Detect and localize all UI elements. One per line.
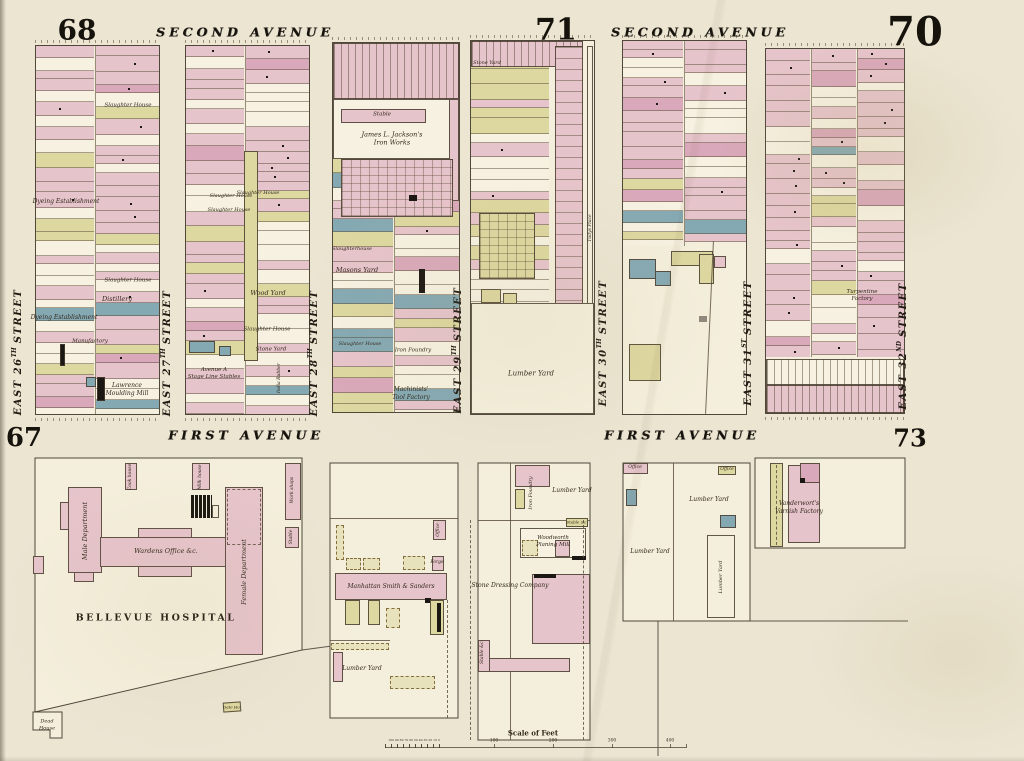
plate-number-71: 71 xyxy=(535,13,577,48)
lot xyxy=(623,86,683,98)
shed xyxy=(363,558,380,570)
lot xyxy=(36,192,94,208)
lot-column xyxy=(811,49,856,357)
lot-column xyxy=(186,46,244,414)
lot xyxy=(36,140,94,153)
lot xyxy=(766,179,810,194)
lot xyxy=(186,379,244,394)
plate-number-68: 68 xyxy=(58,14,97,47)
female-department-dashed xyxy=(227,489,261,545)
map-sheet: 68 71 70 67 73 SECOND AVENUE SECOND AVEN… xyxy=(0,0,1024,761)
lot xyxy=(96,72,159,85)
cook-house xyxy=(125,463,137,490)
lot xyxy=(766,346,810,357)
lot xyxy=(186,255,244,263)
lot xyxy=(766,142,810,155)
rowhouses-strip xyxy=(555,46,583,346)
chimney-dot xyxy=(891,109,893,111)
lot xyxy=(858,253,904,261)
lot xyxy=(186,284,244,299)
work-shops-building xyxy=(285,463,301,520)
lot xyxy=(36,300,94,308)
lot xyxy=(685,109,746,118)
lot xyxy=(246,377,309,386)
lot xyxy=(623,240,683,246)
lot xyxy=(623,202,683,211)
gray-building xyxy=(699,316,707,322)
lot xyxy=(685,178,746,188)
lot xyxy=(812,98,856,107)
first-avenue-label: FIRST AVENUE xyxy=(604,428,760,443)
parcel-line xyxy=(330,518,458,519)
chimney-dot xyxy=(794,211,796,213)
lot xyxy=(96,85,159,93)
second-avenue-label: SECOND AVENUE xyxy=(611,25,789,40)
lot xyxy=(96,303,159,316)
lot xyxy=(186,100,244,109)
lot xyxy=(685,73,746,86)
lot xyxy=(96,211,159,223)
lot-numbers-strip xyxy=(765,43,905,46)
lot xyxy=(623,232,683,240)
plate-number-67: 67 xyxy=(6,423,42,453)
lot xyxy=(685,234,746,242)
lot xyxy=(395,249,459,257)
shed xyxy=(346,558,361,570)
lot xyxy=(623,179,683,190)
lot xyxy=(623,58,683,68)
lot xyxy=(186,403,244,414)
chimney-dot xyxy=(140,126,142,128)
chimney-dot xyxy=(134,216,136,218)
lot xyxy=(812,138,856,147)
lot xyxy=(186,369,244,379)
lot xyxy=(395,295,459,309)
building-pink xyxy=(333,652,343,682)
lot xyxy=(766,155,810,164)
lot xyxy=(246,70,309,84)
lot-column xyxy=(95,46,159,414)
lot xyxy=(36,91,94,102)
lot xyxy=(812,87,856,98)
chimney-dot xyxy=(128,88,130,90)
lot xyxy=(395,375,459,389)
chimney-dot xyxy=(129,296,131,298)
lot xyxy=(858,129,904,137)
lot xyxy=(186,80,244,89)
lot xyxy=(766,249,810,264)
scale-minor-ticks xyxy=(385,744,443,748)
lot xyxy=(333,352,393,367)
lot-column xyxy=(684,41,746,246)
lot xyxy=(812,217,856,227)
lot xyxy=(623,132,683,147)
lot xyxy=(96,245,159,253)
street-label-east-26th: EAST 26THSTREET xyxy=(12,289,24,416)
chimney-dot xyxy=(271,167,273,169)
lot xyxy=(246,112,309,127)
lumber-yard-strip xyxy=(707,535,735,618)
chimney-dot xyxy=(652,53,654,55)
chimney-dot xyxy=(426,230,428,232)
lot xyxy=(333,247,393,262)
alley xyxy=(587,46,593,346)
lot xyxy=(96,223,159,234)
black-building xyxy=(534,574,556,578)
lot xyxy=(685,118,746,134)
lot xyxy=(186,274,244,284)
lot xyxy=(812,71,856,87)
black-hatched-building xyxy=(191,495,212,518)
small-outbuilding xyxy=(212,505,219,518)
lot xyxy=(333,232,393,247)
chimney-dot xyxy=(790,67,792,69)
lot xyxy=(812,49,856,63)
lot xyxy=(858,242,904,253)
lot xyxy=(96,345,159,354)
chimney-dot xyxy=(841,141,843,143)
scale-major-number: 200 xyxy=(549,739,558,744)
lot xyxy=(246,84,309,93)
lot xyxy=(685,134,746,143)
lot xyxy=(96,156,159,164)
street-label-east-32nd: EAST 32NDSTREET xyxy=(897,282,909,409)
chimney-dot xyxy=(204,290,206,292)
lot xyxy=(623,211,683,223)
chimney-dot xyxy=(274,176,276,178)
lot xyxy=(858,83,904,91)
lot xyxy=(858,181,904,190)
lot xyxy=(333,404,393,412)
scale-minor-numbers: 100 90 80 70 60 50 40 30 20 10 0 xyxy=(388,738,440,742)
shed xyxy=(331,643,389,650)
chimney-dot xyxy=(72,199,74,201)
lot xyxy=(685,50,746,65)
lot xyxy=(623,111,683,123)
lot xyxy=(812,243,856,251)
lot xyxy=(471,84,549,100)
lot xyxy=(36,79,94,91)
lot xyxy=(623,50,683,58)
scale-tick xyxy=(686,744,687,748)
lot xyxy=(333,338,393,352)
lot xyxy=(812,168,856,179)
chimney-dot xyxy=(871,53,873,55)
buff-grid-building xyxy=(479,213,535,279)
lot xyxy=(858,272,904,281)
lot xyxy=(812,204,856,217)
lot xyxy=(36,71,94,79)
chimney-dot xyxy=(798,158,800,160)
wardens-office-building xyxy=(138,528,192,538)
parcel-line xyxy=(510,463,511,740)
lot xyxy=(858,59,904,70)
chimney-dot xyxy=(873,325,875,327)
lot xyxy=(858,233,904,242)
office-building xyxy=(623,463,648,474)
lot xyxy=(36,127,94,140)
shed xyxy=(403,556,425,570)
chimney-dot xyxy=(885,63,887,65)
lot xyxy=(812,129,856,138)
city-block-29-30 xyxy=(470,40,595,415)
street-label-east-29th: EAST 29THSTREET xyxy=(452,287,464,414)
blue-building xyxy=(655,271,671,286)
lot xyxy=(858,165,904,181)
lot xyxy=(395,227,459,235)
lot xyxy=(246,46,309,59)
blue-building xyxy=(629,259,656,279)
lot xyxy=(36,343,94,354)
lot xyxy=(333,281,393,289)
lot xyxy=(96,234,159,245)
lot xyxy=(333,289,393,304)
lot xyxy=(766,49,810,61)
chimney-dot xyxy=(287,157,289,159)
lot xyxy=(471,100,549,108)
lot xyxy=(685,101,746,109)
lot xyxy=(36,408,94,414)
lot-numbers-strip xyxy=(185,40,310,43)
blue-building xyxy=(86,377,96,387)
lot xyxy=(246,59,309,70)
lot xyxy=(812,295,856,308)
lot xyxy=(36,182,94,192)
lot xyxy=(246,93,309,102)
chimney-dot xyxy=(841,265,843,267)
lot xyxy=(812,179,856,188)
rowhouses-band xyxy=(766,385,904,413)
lot xyxy=(766,61,810,75)
lot xyxy=(186,89,244,100)
small-outbuilding xyxy=(33,556,44,574)
lot xyxy=(858,261,904,272)
chimney-dot xyxy=(794,351,796,353)
dashed-property-line xyxy=(447,600,448,718)
street-label-east-31st: EAST 31STSTREET xyxy=(742,280,754,405)
lot xyxy=(766,275,810,291)
lot-column xyxy=(766,49,810,357)
lot xyxy=(36,332,94,343)
lot xyxy=(333,329,393,338)
manhattan-works-building xyxy=(335,573,447,600)
lot xyxy=(333,393,393,404)
lot xyxy=(186,263,244,274)
lot xyxy=(36,264,94,276)
buff-building xyxy=(368,600,380,625)
stable-building xyxy=(285,527,299,548)
lot xyxy=(395,319,459,328)
lot xyxy=(395,366,459,375)
lot xyxy=(96,363,159,379)
chimney-dot xyxy=(492,195,494,197)
lot xyxy=(471,192,549,200)
lot xyxy=(36,321,94,332)
chimney-dot xyxy=(843,182,845,184)
lot-column xyxy=(623,41,683,246)
lot xyxy=(96,107,159,119)
lot xyxy=(246,102,309,112)
shed xyxy=(390,676,435,689)
chimney-dot xyxy=(656,103,658,105)
dashed-property-line xyxy=(583,520,584,740)
lot xyxy=(36,102,94,116)
building-pink xyxy=(478,658,570,672)
lot-column xyxy=(36,46,94,414)
lot-numbers-strip xyxy=(185,418,310,421)
lot xyxy=(395,285,459,295)
lot xyxy=(858,137,904,152)
shed xyxy=(386,608,400,628)
lot xyxy=(685,196,746,211)
lot xyxy=(685,157,746,167)
lot xyxy=(186,57,244,69)
lot xyxy=(96,330,159,345)
lot xyxy=(96,164,159,173)
lot xyxy=(812,196,856,204)
dashed-property-line xyxy=(776,465,777,545)
stone-dressing-building xyxy=(532,574,590,644)
lot-numbers-strip xyxy=(332,37,460,40)
lot xyxy=(36,219,94,232)
lot xyxy=(623,190,683,202)
second-avenue-label: SECOND AVENUE xyxy=(156,25,334,40)
scale-major-number: 100 xyxy=(490,739,499,744)
lot xyxy=(623,78,683,86)
lot xyxy=(812,107,856,119)
lot xyxy=(96,253,159,264)
city-block-26-27 xyxy=(35,45,160,415)
lot xyxy=(623,160,683,169)
scale-major-number: 400 xyxy=(666,739,675,744)
lot xyxy=(766,241,810,249)
lot xyxy=(812,119,856,129)
lot xyxy=(766,75,810,86)
chimney-dot xyxy=(838,347,840,349)
chimney-dot xyxy=(825,172,827,174)
blue-building xyxy=(219,346,231,356)
lot xyxy=(36,168,94,182)
lot xyxy=(812,324,856,334)
black-building xyxy=(437,603,441,632)
lot xyxy=(766,305,810,321)
lot xyxy=(471,118,549,134)
black-building xyxy=(409,195,417,201)
blue-building xyxy=(189,341,215,353)
building-pink xyxy=(714,256,726,268)
lot-numbers-strip xyxy=(35,418,160,421)
chimney-dot xyxy=(793,297,795,299)
lot xyxy=(186,161,244,174)
lot xyxy=(812,262,856,271)
lot xyxy=(333,273,393,281)
lot xyxy=(395,328,459,342)
lot xyxy=(186,394,244,403)
lot xyxy=(395,309,459,319)
lot xyxy=(246,395,309,406)
shoreline xyxy=(302,646,332,650)
lot xyxy=(186,299,244,308)
office-building xyxy=(433,520,446,540)
lot xyxy=(766,321,810,337)
chimney-dot xyxy=(212,50,214,52)
lot-numbers-strip xyxy=(765,417,905,420)
lot xyxy=(766,218,810,231)
lot xyxy=(395,401,459,410)
lot xyxy=(36,232,94,241)
lot xyxy=(36,276,94,286)
lot xyxy=(395,257,459,271)
lot xyxy=(685,143,746,157)
lot xyxy=(36,241,94,256)
lot xyxy=(333,304,393,317)
blue-building xyxy=(720,515,736,528)
lot xyxy=(96,197,159,211)
chimney-dot xyxy=(886,357,888,358)
lot xyxy=(858,221,904,233)
lot xyxy=(858,152,904,165)
lot xyxy=(333,317,393,329)
lot xyxy=(858,91,904,103)
lot xyxy=(766,337,810,346)
chimney-dot xyxy=(724,92,726,94)
lot xyxy=(186,69,244,80)
chimney-dot xyxy=(793,170,795,172)
chimney-dot xyxy=(796,244,798,246)
scale-tick xyxy=(670,744,671,748)
lot xyxy=(623,169,683,179)
lot xyxy=(623,147,683,160)
lot xyxy=(186,46,244,57)
lot xyxy=(96,146,159,156)
lot xyxy=(333,378,393,393)
black-building xyxy=(97,377,105,401)
lot xyxy=(96,119,159,135)
lot xyxy=(395,271,459,285)
lot xyxy=(96,316,159,330)
lot xyxy=(685,65,746,73)
chimney-dot xyxy=(130,203,132,205)
lot xyxy=(471,200,549,213)
chimney-dot xyxy=(59,108,61,110)
chimney-dot xyxy=(501,149,503,151)
chimney-dot xyxy=(884,122,886,124)
lot xyxy=(96,272,159,280)
lot xyxy=(186,226,244,242)
lot xyxy=(471,134,549,143)
dashed-property-line xyxy=(470,520,471,740)
lot xyxy=(36,116,94,127)
lot xyxy=(96,389,159,400)
building-pink xyxy=(555,540,570,557)
lot xyxy=(333,262,393,273)
city-block-31-32 xyxy=(765,48,905,414)
chimney-dot xyxy=(664,81,666,83)
lot xyxy=(623,98,683,111)
buff-building xyxy=(515,489,525,509)
lot xyxy=(471,108,549,118)
shed xyxy=(522,540,538,556)
lot xyxy=(333,367,393,378)
lot xyxy=(471,169,549,180)
lot xyxy=(623,123,683,132)
lot xyxy=(36,153,94,168)
chimney-dot xyxy=(721,191,723,193)
lot xyxy=(186,134,244,146)
lot xyxy=(246,406,309,414)
lot xyxy=(685,211,746,220)
chimney-dot xyxy=(266,76,268,78)
